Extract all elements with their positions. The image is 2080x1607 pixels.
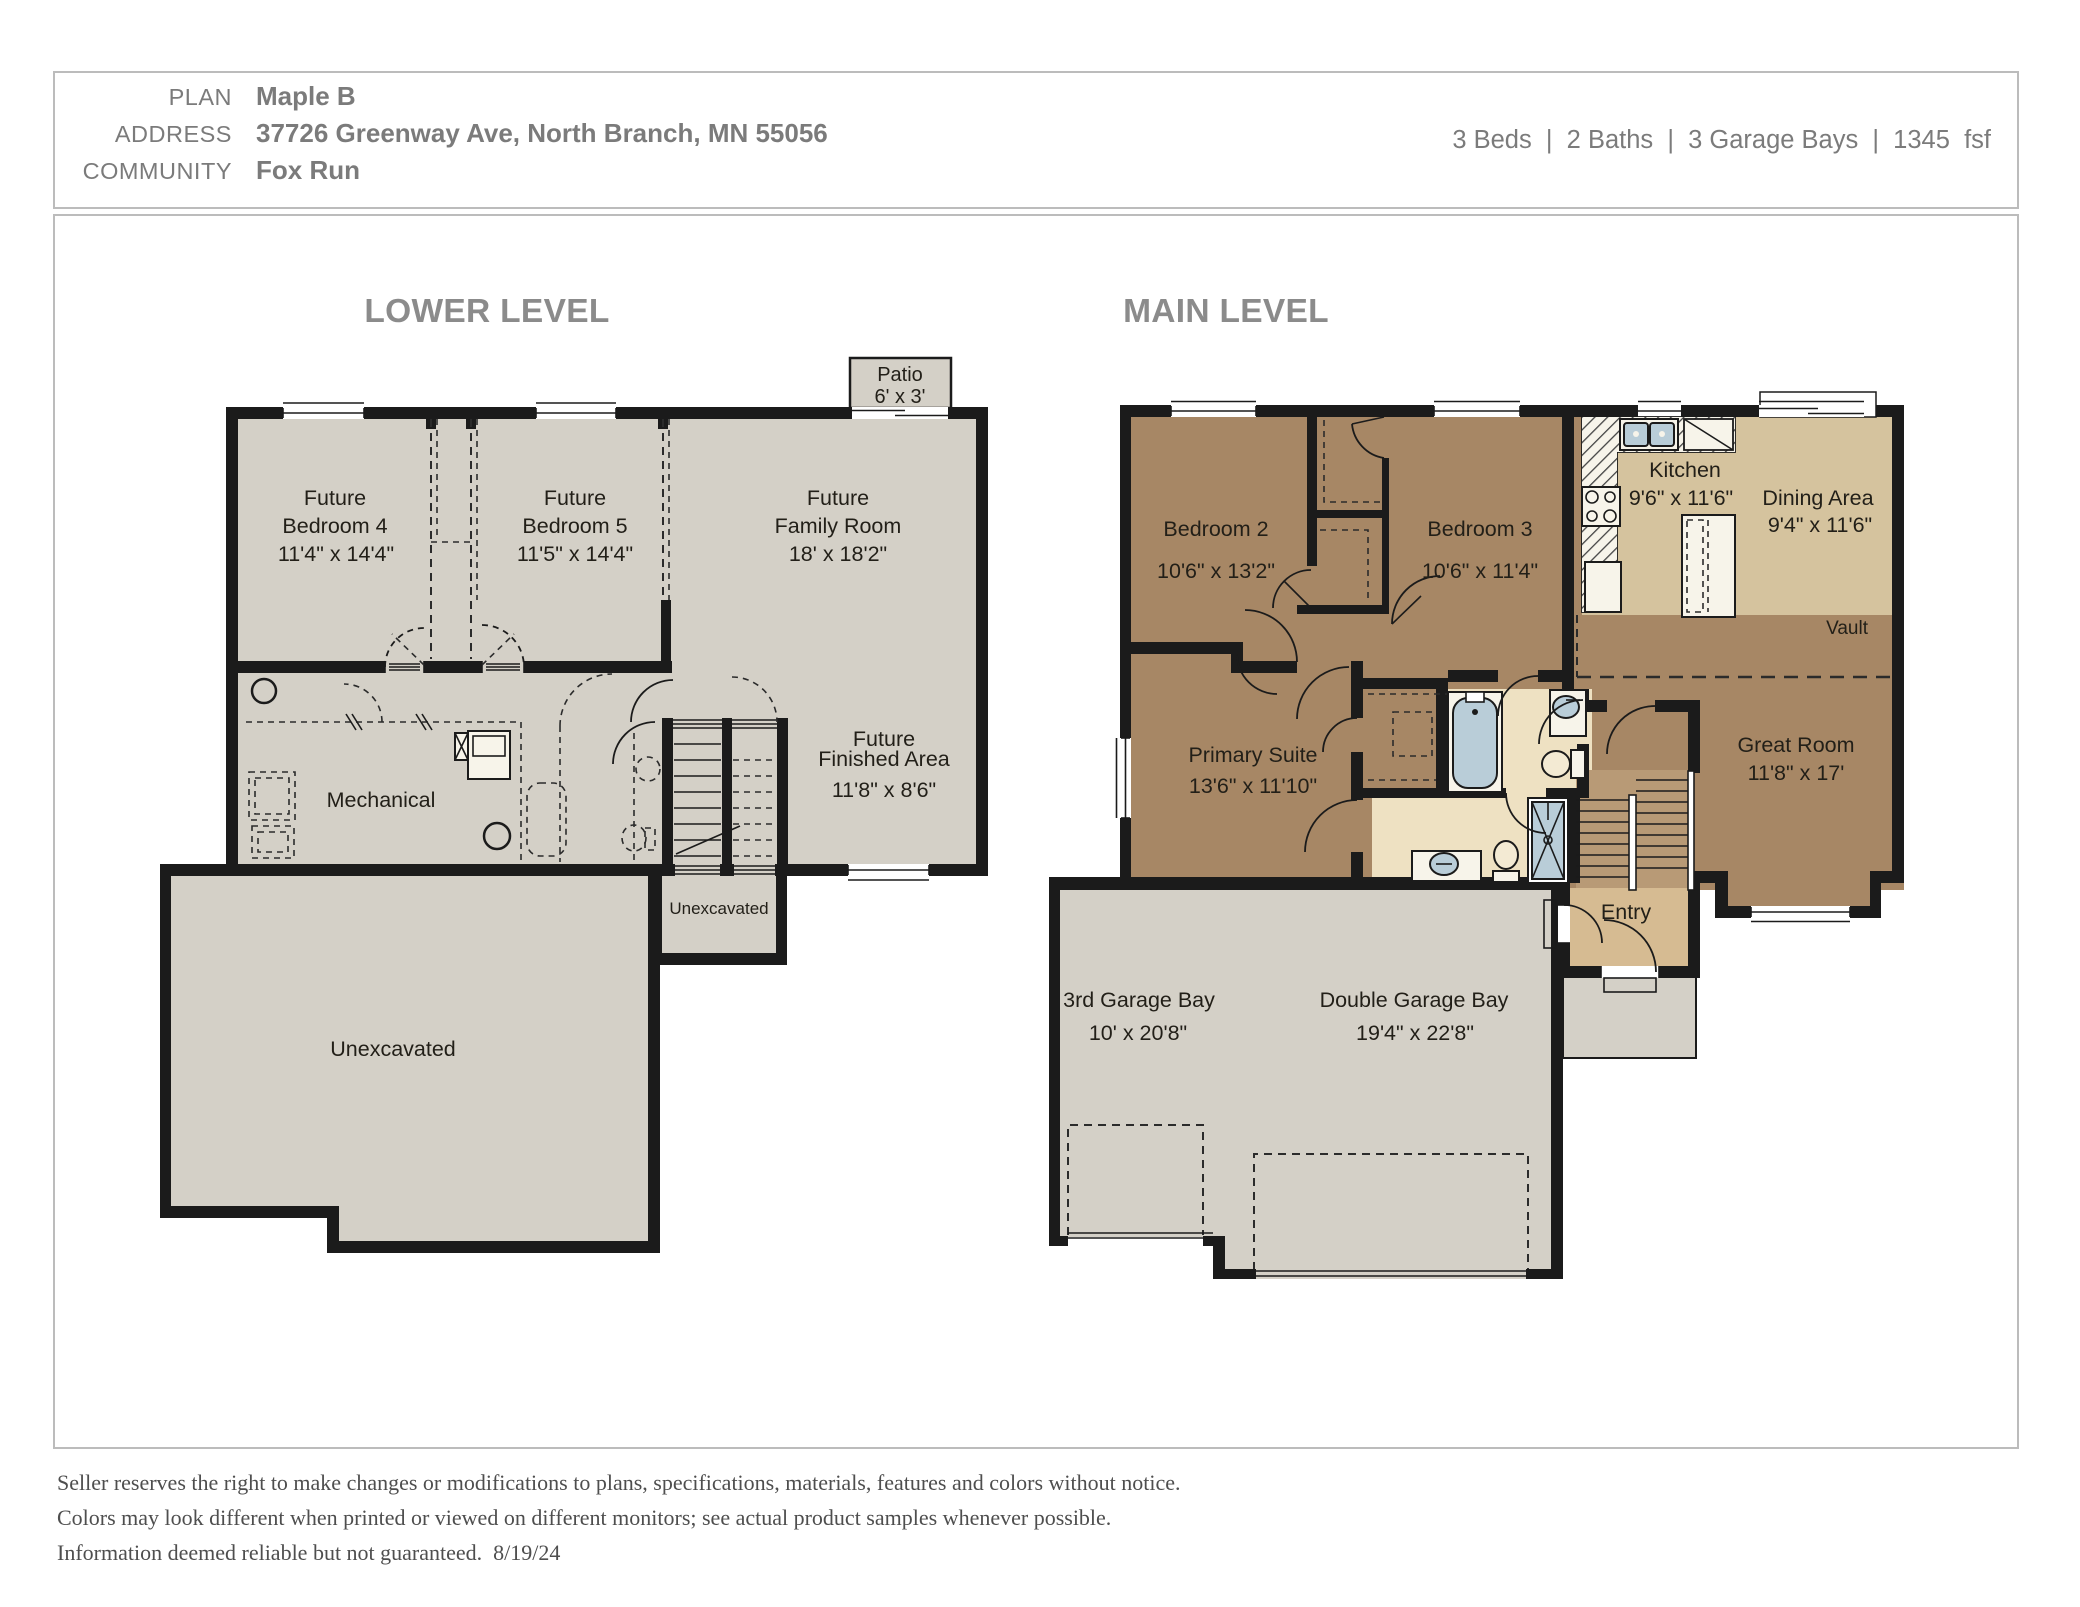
svg-text:Double Garage Bay: Double Garage Bay (1320, 988, 1509, 1012)
svg-text:Maple B: Maple B (256, 81, 356, 111)
svg-text:6' x 3': 6' x 3' (875, 386, 926, 408)
svg-text:Seller reserves the right to m: Seller reserves the right to make change… (57, 1470, 1181, 1495)
svg-text:Dining Area: Dining Area (1762, 486, 1873, 510)
svg-text:37726 Greenway Ave, North Bran: 37726 Greenway Ave, North Branch, MN 550… (256, 118, 828, 148)
svg-text:Primary Suite: Primary Suite (1188, 743, 1317, 767)
svg-text:10'6" x 13'2": 10'6" x 13'2" (1157, 559, 1275, 583)
svg-text:Colors may look different when: Colors may look different when printed o… (57, 1505, 1111, 1530)
svg-text:Future: Future (304, 486, 366, 510)
svg-text:PLAN: PLAN (169, 84, 232, 110)
svg-text:MAIN LEVEL: MAIN LEVEL (1123, 293, 1329, 330)
svg-text:Fox Run: Fox Run (256, 155, 360, 185)
svg-text:10'6" x 11'4": 10'6" x 11'4" (1422, 559, 1538, 583)
svg-text:9'4" x 11'6": 9'4" x 11'6" (1768, 513, 1872, 537)
svg-text:10' x 20'8": 10' x 20'8" (1089, 1021, 1187, 1045)
svg-text:Information deemed reliable bu: Information deemed reliable but not guar… (57, 1540, 560, 1565)
svg-text:Bedroom 3: Bedroom 3 (1427, 517, 1532, 541)
svg-text:Patio: Patio (877, 364, 923, 386)
svg-text:Kitchen: Kitchen (1649, 458, 1721, 482)
svg-text:Bedroom 4: Bedroom 4 (282, 514, 387, 538)
svg-text:18' x 18'2": 18' x 18'2" (789, 542, 887, 566)
svg-text:13'6" x 11'10": 13'6" x 11'10" (1189, 774, 1317, 798)
svg-text:COMMUNITY: COMMUNITY (83, 158, 232, 184)
svg-text:3 Beds | 2 Baths | 3 Garag: 3 Beds | 2 Baths | 3 Garage Bays | 1345 … (1452, 126, 1992, 154)
svg-text:Future: Future (544, 486, 606, 510)
svg-text:Bedroom 2: Bedroom 2 (1163, 517, 1268, 541)
svg-text:3rd Garage Bay: 3rd Garage Bay (1063, 988, 1215, 1012)
svg-text:9'6" x 11'6": 9'6" x 11'6" (1629, 486, 1733, 510)
svg-text:11'8" x 17': 11'8" x 17' (1748, 761, 1845, 785)
svg-text:Future: Future (807, 486, 869, 510)
svg-text:Mechanical: Mechanical (327, 788, 436, 812)
svg-text:Unexcavated: Unexcavated (330, 1037, 456, 1061)
svg-text:Unexcavated: Unexcavated (669, 899, 768, 918)
svg-text:11'4" x 14'4": 11'4" x 14'4" (278, 542, 394, 566)
svg-text:Great Room: Great Room (1737, 733, 1854, 757)
svg-text:LOWER LEVEL: LOWER LEVEL (364, 293, 609, 330)
svg-text:Finished Area: Finished Area (818, 747, 950, 771)
svg-text:Family Room: Family Room (775, 514, 902, 538)
svg-text:11'8" x 8'6": 11'8" x 8'6" (832, 778, 936, 802)
svg-text:11'5" x 14'4": 11'5" x 14'4" (517, 542, 633, 566)
svg-text:Vault: Vault (1826, 618, 1869, 639)
svg-text:Bedroom 5: Bedroom 5 (522, 514, 627, 538)
svg-text:19'4" x 22'8": 19'4" x 22'8" (1356, 1021, 1474, 1045)
svg-text:ADDRESS: ADDRESS (115, 121, 232, 147)
svg-text:Entry: Entry (1601, 900, 1651, 924)
